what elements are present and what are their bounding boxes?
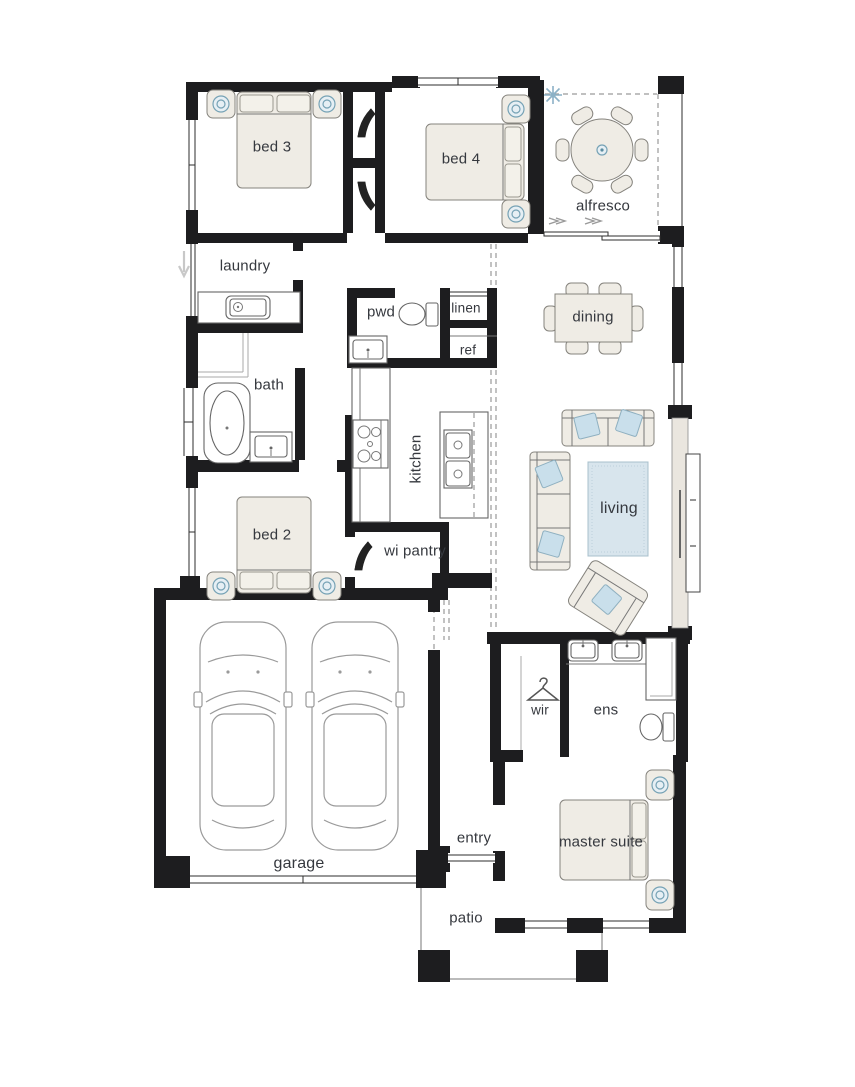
room-label-laundry: laundry — [220, 258, 271, 277]
clothes-hanger-icon — [528, 678, 558, 700]
door-swing-icon — [358, 109, 375, 137]
door-swing-icon — [358, 182, 375, 210]
ens-sink-2 — [612, 640, 642, 661]
ceiling-fan-icon — [544, 86, 562, 104]
room-label-alfresco: alfresco — [576, 198, 630, 217]
room-label-master-suite: master suite — [558, 834, 644, 853]
cooktop — [353, 420, 388, 468]
room-label-wir: wir — [531, 703, 549, 720]
room-label-entry: entry — [457, 830, 491, 849]
bath-vanity — [250, 432, 292, 462]
pwd-toilet — [399, 303, 438, 326]
ens-shower — [646, 638, 676, 700]
room-label-bath: bath — [254, 377, 284, 396]
garage-car-left — [194, 622, 292, 850]
window-bed4-top — [418, 76, 498, 87]
sofa-top — [562, 409, 654, 446]
room-label-bed2: bed 2 — [253, 527, 292, 546]
window-bed2-left — [187, 488, 197, 576]
window-dining-east-2 — [671, 363, 685, 405]
window-bath-left — [182, 388, 196, 456]
ens-sink-1 — [568, 640, 598, 661]
room-label-patio: patio — [449, 910, 483, 929]
alfresco-table-set — [556, 105, 648, 196]
room-label-garage: garage — [273, 854, 324, 874]
living-furniture — [530, 409, 654, 637]
window-dining-east-1 — [671, 247, 685, 287]
window-bed3-left — [187, 120, 197, 210]
room-label-wi-pantry: wi pantry — [380, 543, 450, 562]
room-label-living: living — [600, 499, 638, 519]
garage-car-right — [306, 622, 404, 850]
bed2-furniture — [207, 497, 341, 600]
bath-fixtures — [198, 333, 292, 463]
entry-flow-arrow-icon — [179, 251, 189, 276]
laundry-fixtures — [198, 292, 300, 323]
room-label-pwd: pwd — [367, 304, 395, 323]
ens-toilet — [640, 713, 674, 741]
window-laundry-left — [189, 244, 197, 316]
sliding-door-living-bay — [672, 418, 700, 628]
slide-direction-arrow-icon — [549, 218, 601, 224]
window-master-1 — [525, 919, 567, 930]
window-master-2 — [603, 919, 649, 930]
room-label-bed3: bed 3 — [253, 139, 292, 158]
room-label-ens: ens — [594, 702, 619, 721]
room-label-dining: dining — [572, 309, 613, 328]
front-door — [448, 853, 495, 863]
armchair — [566, 558, 650, 637]
pwd-vanity — [349, 336, 387, 363]
floor-plan-page: bed 3 bed 4 alfresco laundry pwd linen r… — [0, 0, 855, 1087]
garage-door — [190, 874, 416, 885]
room-label-ref: ref — [460, 343, 476, 360]
room-label-kitchen: kitchen — [408, 435, 427, 484]
ens-fixtures — [566, 638, 676, 741]
sofa-left — [530, 452, 570, 570]
room-label-linen: linen — [451, 301, 481, 318]
door-swing-icon — [355, 542, 372, 570]
room-label-bed4: bed 4 — [442, 151, 481, 170]
kitchen-island — [440, 412, 488, 518]
sliding-door-alfresco — [544, 231, 660, 242]
